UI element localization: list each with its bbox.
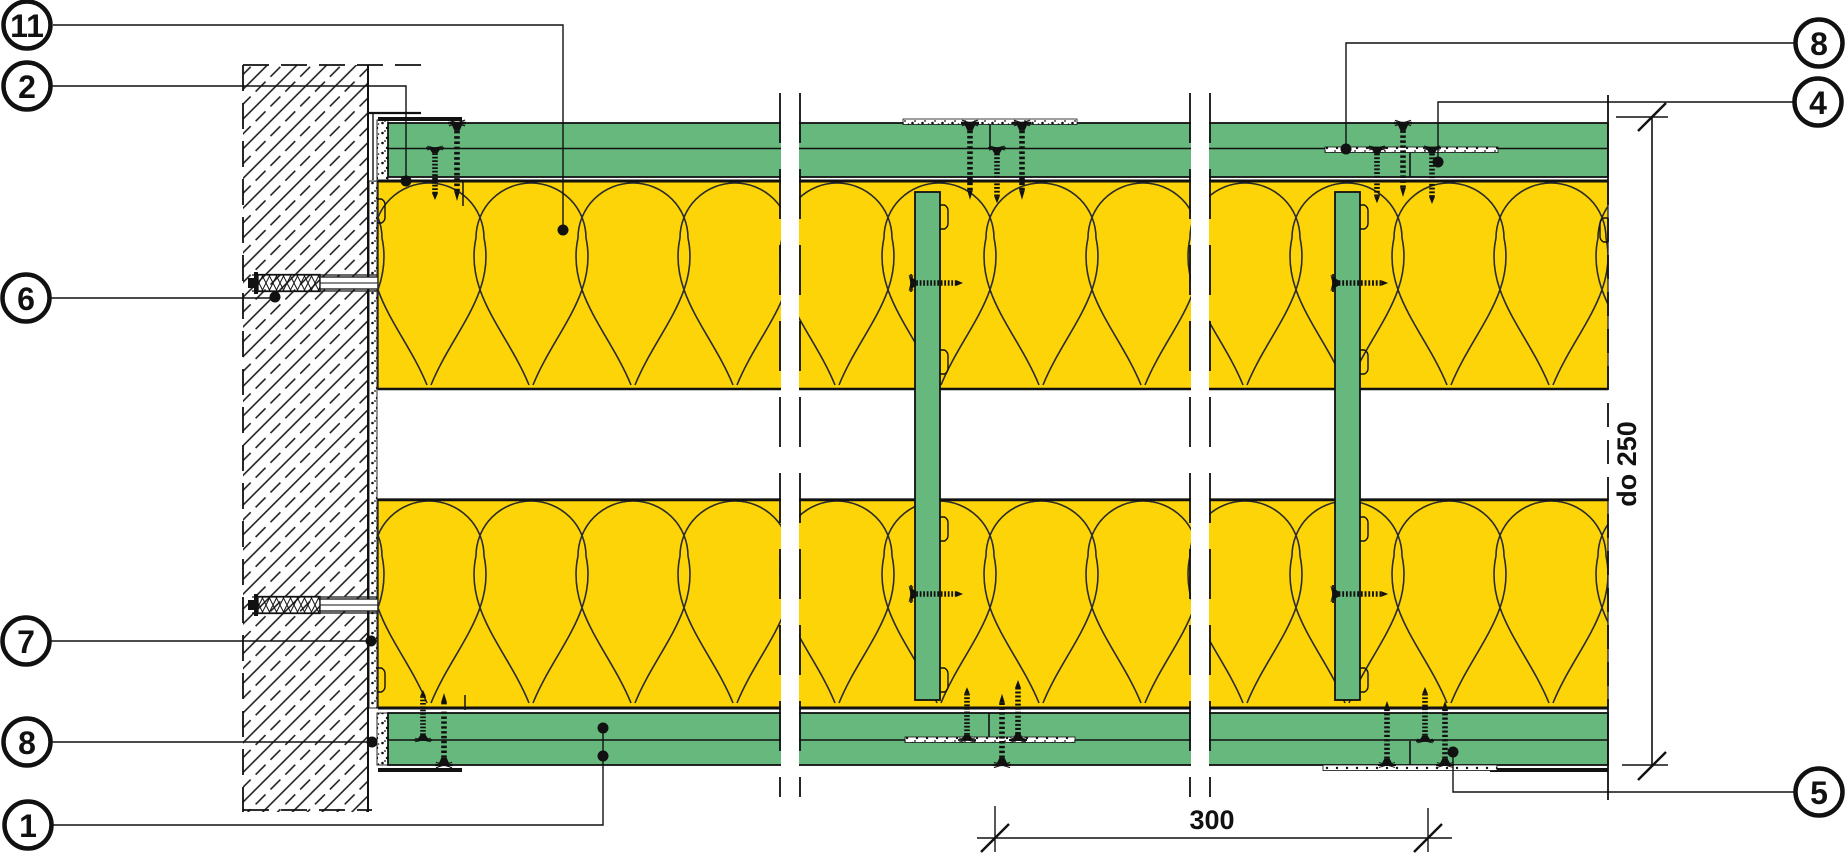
- callout-8-right: 8: [1796, 20, 1843, 67]
- callout-8-left-label: 8: [18, 725, 36, 761]
- callout-8-right-label: 8: [1810, 26, 1828, 62]
- insulation-lower: [378, 499, 1608, 708]
- sealant-block-top: [377, 120, 388, 180]
- section-break-2: [1190, 93, 1210, 798]
- callout-11: 11: [4, 2, 51, 49]
- callout-4: 4: [1795, 79, 1842, 126]
- callout-11-label: 11: [10, 8, 44, 44]
- callout-6-label: 6: [17, 281, 35, 317]
- callout-1: 1: [5, 802, 52, 849]
- dimension-spacing-label: 300: [1189, 805, 1234, 835]
- dimension-height-label: do 250: [1612, 421, 1642, 507]
- callout-1-label: 1: [19, 808, 37, 844]
- sealant-block-bottom: [377, 713, 388, 765]
- callout-2: 2: [4, 63, 51, 110]
- callout-8-left: 8: [4, 719, 51, 766]
- callout-7-label: 7: [17, 624, 35, 660]
- callout-4-label: 4: [1809, 85, 1827, 121]
- dimension-horizontal: 300: [977, 805, 1452, 852]
- dimension-vertical: do 250: [1612, 103, 1668, 780]
- wall-anchor-upper: [248, 271, 390, 295]
- callout-5: 5: [1796, 769, 1843, 816]
- construction-detail-drawing: 11 2 6 7 8 1 8 4 5 do 250: [0, 0, 1845, 853]
- masonry-hatch: [243, 65, 368, 812]
- callout-6: 6: [3, 275, 50, 322]
- wall-anchor-lower: [248, 593, 390, 617]
- joint-compound-bottom-divider: [905, 737, 1075, 743]
- callout-7: 7: [3, 618, 50, 665]
- callout-2-label: 2: [18, 69, 36, 105]
- drawing-canvas: 11 2 6 7 8 1 8 4 5 do 250: [0, 0, 1845, 853]
- adhesive-strip: [369, 181, 377, 708]
- callout-5-label: 5: [1810, 775, 1828, 811]
- joint-compound-bottom-face: [1323, 765, 1497, 771]
- section-break-1: [780, 93, 800, 798]
- joint-compound-top-face: [903, 119, 1077, 125]
